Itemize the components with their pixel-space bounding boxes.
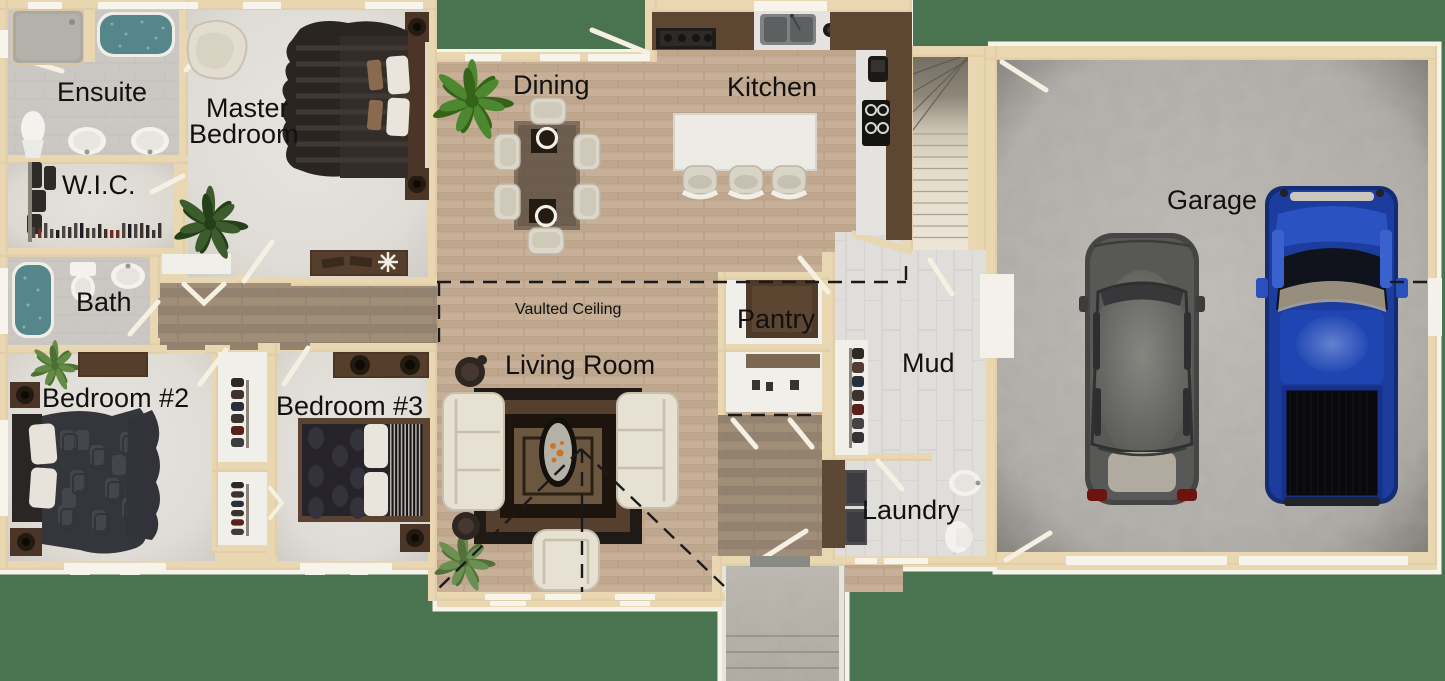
svg-text:Kitchen: Kitchen [727, 72, 817, 102]
svg-text:Bath: Bath [76, 287, 132, 317]
svg-text:Living Room: Living Room [505, 350, 655, 380]
svg-text:Garage: Garage [1167, 185, 1257, 215]
svg-text:Laundry: Laundry [862, 495, 960, 525]
svg-text:Bedroom #3: Bedroom #3 [276, 391, 423, 421]
svg-text:Bedroom: Bedroom [189, 119, 299, 149]
svg-text:Mud: Mud [902, 348, 955, 378]
svg-text:Pantry: Pantry [737, 304, 816, 334]
svg-text:Dining: Dining [513, 70, 590, 100]
svg-text:Ensuite: Ensuite [57, 77, 147, 107]
svg-text:Bedroom #2: Bedroom #2 [42, 383, 189, 413]
svg-text:W.I.C.: W.I.C. [62, 170, 136, 200]
svg-text:Vaulted Ceiling: Vaulted Ceiling [515, 301, 621, 318]
